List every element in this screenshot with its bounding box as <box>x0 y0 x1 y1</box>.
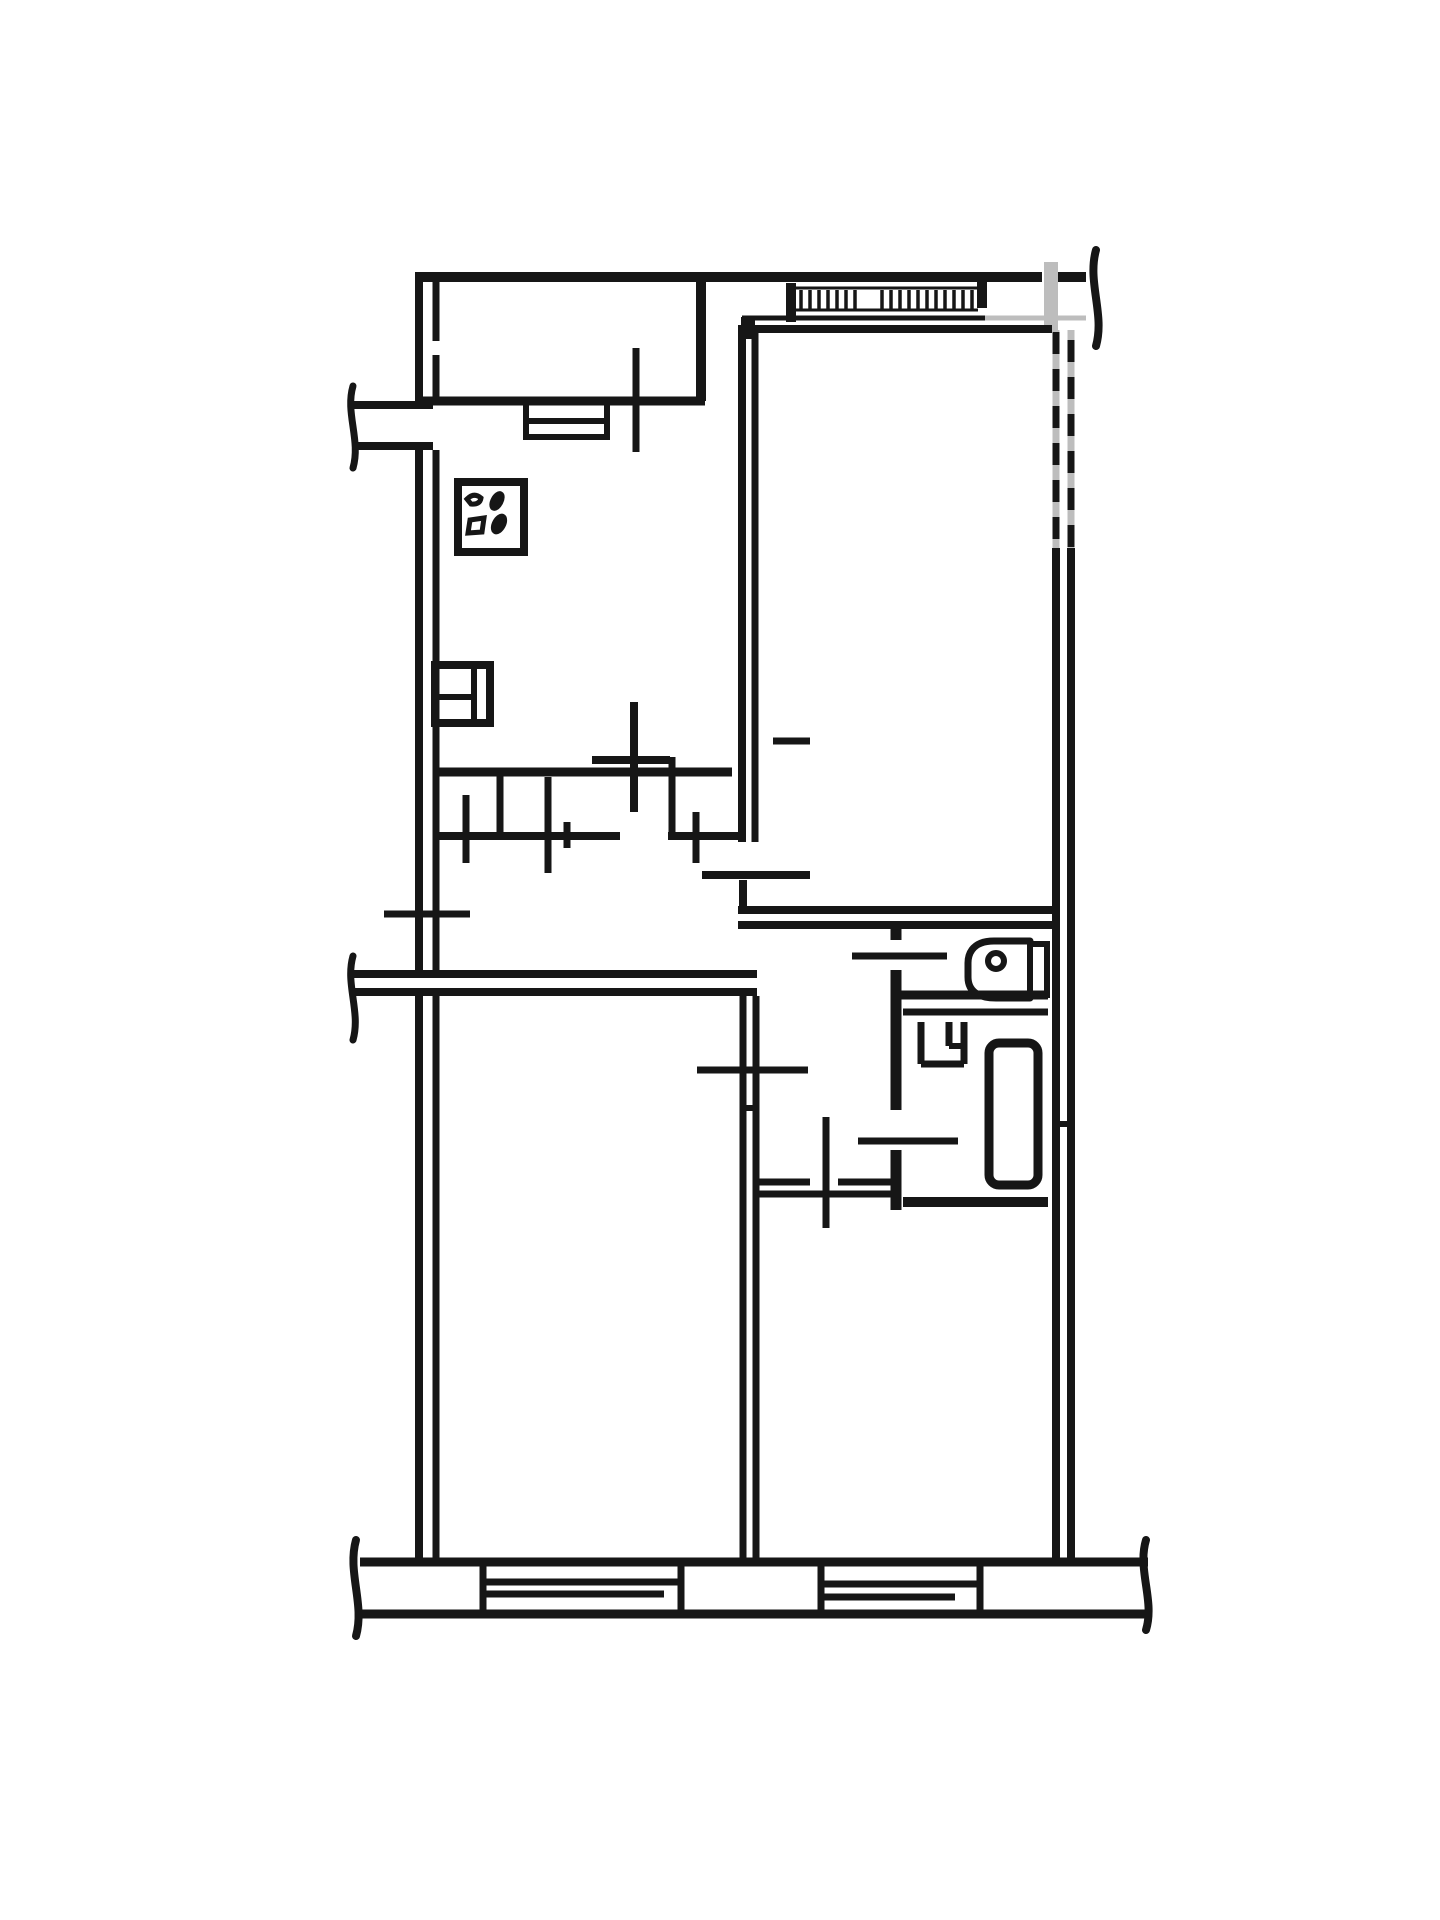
living-room-walls <box>702 317 1052 925</box>
balcony-glazing <box>791 278 982 322</box>
stove-icon <box>458 482 524 552</box>
left-room-window-bay <box>352 974 757 992</box>
bottom-window-right <box>821 1562 980 1614</box>
room-divider-wall <box>697 996 808 1562</box>
kitchen-window-bay <box>352 405 433 446</box>
scanned-floor-plan-page <box>0 0 1440 1920</box>
toilet-icon <box>968 941 1047 998</box>
bathtub-icon <box>989 1043 1038 1185</box>
bottom-window-left <box>483 1562 681 1614</box>
floor-plan-canvas <box>0 0 1440 1920</box>
bathroom-wc-walls <box>852 928 1048 1210</box>
kitchen-sink-icon <box>435 665 490 723</box>
entrance-hall-walls <box>418 282 705 452</box>
corridor-walls <box>758 1117 897 1228</box>
washbasin-icon <box>921 1022 964 1064</box>
